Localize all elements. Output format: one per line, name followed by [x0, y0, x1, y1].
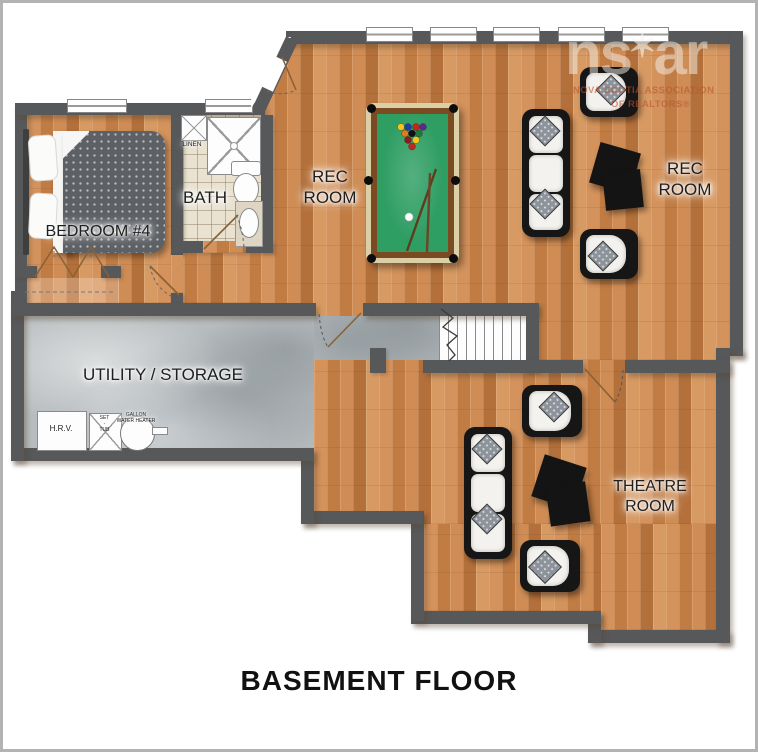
wall-theatre-step-vertical: [411, 511, 424, 621]
rec-room-right-label: REC ROOM: [655, 159, 715, 200]
window-rec-2: [430, 27, 477, 42]
shower-drain: [230, 142, 238, 150]
rec-room-main-label-line1: REC: [312, 167, 348, 186]
water-heater-stub: [152, 427, 168, 435]
bath-label: BATH: [175, 188, 235, 209]
wall-theatre-step-horizontal: [301, 511, 423, 524]
rec-room-main-label: REC ROOM: [300, 167, 360, 208]
bedroom-door-opening: [171, 255, 183, 293]
rec-room-main-label-line2: ROOM: [304, 188, 357, 207]
set-tub-label-line2: TUB: [100, 427, 110, 433]
rec-room-right-label-line1: REC: [667, 159, 703, 178]
hrv-label: H.R.V.: [37, 424, 85, 434]
window-bedroom: [67, 99, 127, 113]
wall-closet-jamb-right: [101, 266, 121, 278]
linen-closet: [181, 115, 207, 141]
pool-pocket-br: [449, 254, 458, 263]
window-rec-4: [558, 27, 605, 42]
vanity-sink: [239, 208, 259, 238]
rec-sofa-cushion-2: [529, 155, 563, 192]
pool-table-felt: [377, 114, 448, 252]
hall-floor: [171, 253, 261, 303]
window-rec-3: [493, 27, 540, 42]
wall-right-lower: [716, 348, 730, 643]
plan-title-text: BASEMENT FLOOR: [241, 665, 518, 696]
wall-utility-left: [11, 291, 24, 461]
water-heater-label: GALLON WATER HEATER: [105, 413, 167, 425]
pool-pocket-ml: [364, 176, 373, 185]
wall-right-upper: [730, 31, 743, 356]
linen-label: LINEN: [175, 141, 209, 149]
bath-label-text: BATH: [183, 188, 227, 207]
wall-rec-theatre-divider-left: [423, 360, 583, 373]
pool-pocket-tl: [367, 104, 376, 113]
wall-theatre-bottom-right: [588, 630, 730, 643]
closet-floor-highlight: [27, 278, 119, 303]
utility-label: UTILITY / STORAGE: [63, 365, 263, 386]
floor-plan-canvas: ns ✶ ar NOVA SCOTIA ASSOCIATION OF REALT…: [0, 0, 758, 752]
theatre-label-line2: ROOM: [625, 498, 675, 515]
rec-room-right-label-line2: ROOM: [659, 180, 712, 199]
theatre-floor-lower-right: [601, 524, 716, 630]
wall-closet-jamb-left: [15, 266, 37, 278]
bed-fold: [63, 131, 89, 161]
staircase: [439, 311, 527, 360]
bed-pillow-top: [27, 134, 58, 182]
window-rec-5: [622, 27, 669, 42]
linen-label-text: LINEN: [182, 141, 201, 148]
wall-rec-theatre-divider-right: [625, 360, 730, 373]
bedroom-label-text: BEDROOM #4: [46, 223, 151, 240]
wall-utility-top-right: [363, 303, 539, 316]
theatre-coffee-table-b: [545, 481, 590, 526]
hrv-label-text: H.R.V.: [50, 424, 73, 433]
utility-label-text: UTILITY / STORAGE: [83, 365, 243, 384]
bedroom-label: BEDROOM #4: [33, 222, 163, 242]
theatre-label-line1: THEATRE: [613, 478, 686, 495]
water-heater-label-line2: WATER HEATER: [117, 418, 156, 424]
rec-coffee-table-b: [602, 169, 644, 211]
wall-utility-top-left: [11, 303, 316, 316]
plan-title: BASEMENT FLOOR: [3, 665, 755, 697]
wall-utility-stub: [370, 348, 386, 373]
window-rec-1: [366, 27, 413, 42]
pool-pocket-mr: [451, 176, 460, 185]
pool-pocket-tr: [449, 104, 458, 113]
wall-theatre-bottom-left: [411, 611, 601, 624]
pool-pocket-bl: [367, 254, 376, 263]
window-bath: [205, 99, 253, 113]
theatre-label: THEATRE ROOM: [595, 477, 705, 516]
